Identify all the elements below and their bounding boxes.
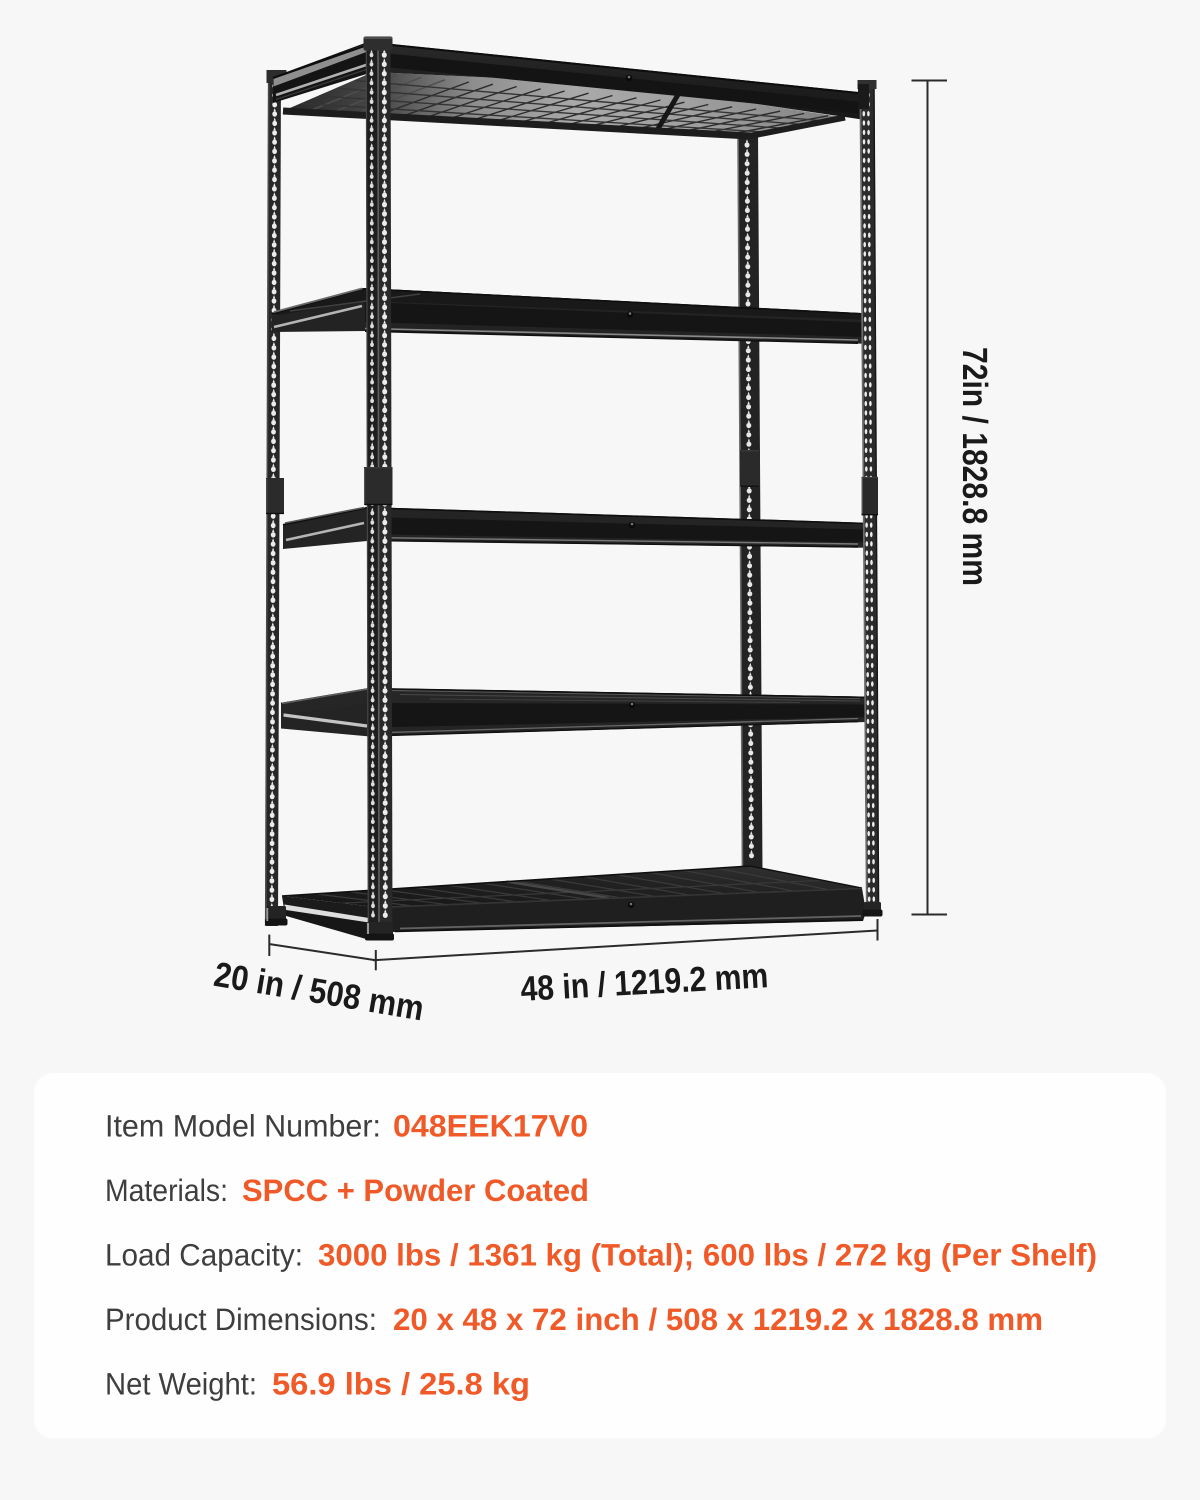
svg-text:20 x 48 x 72 inch / 508 x 1219: 20 x 48 x 72 inch / 508 x 1219.2 x 1828.… bbox=[393, 1302, 1043, 1337]
svg-text:Product Dimensions:: Product Dimensions: bbox=[105, 1302, 377, 1337]
svg-text:Materials:: Materials: bbox=[105, 1173, 228, 1208]
svg-text:SPCC + Powder Coated: SPCC + Powder Coated bbox=[242, 1173, 589, 1208]
svg-text:Load Capacity:: Load Capacity: bbox=[105, 1238, 303, 1273]
svg-text:048EEK17V0: 048EEK17V0 bbox=[393, 1109, 588, 1144]
svg-text:20 in / 508 mm: 20 in / 508 mm bbox=[211, 955, 427, 1028]
svg-text:Item Model Number:: Item Model Number: bbox=[105, 1109, 381, 1144]
svg-text:56.9 lbs / 25.8 kg: 56.9 lbs / 25.8 kg bbox=[272, 1367, 530, 1402]
svg-text:3000 lbs / 1361 kg (Total); 60: 3000 lbs / 1361 kg (Total); 600 lbs / 27… bbox=[318, 1238, 1097, 1273]
svg-text:48 in / 1219.2 mm: 48 in / 1219.2 mm bbox=[519, 956, 769, 1009]
svg-text:72in / 1828.8 mm: 72in / 1828.8 mm bbox=[955, 347, 994, 586]
svg-text:Net Weight:: Net Weight: bbox=[105, 1367, 257, 1402]
